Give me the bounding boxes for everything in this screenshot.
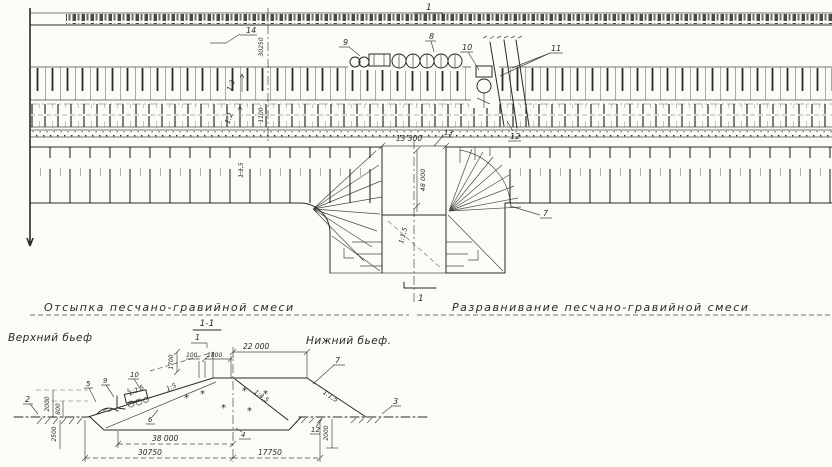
star-icon: * (200, 389, 205, 400)
dim-body-width: 48 000 (419, 169, 427, 192)
ground-hatch-right (301, 418, 380, 423)
stake-top-marks (483, 36, 522, 39)
callout-7-section: 7 (335, 356, 341, 365)
star-icon: * (184, 393, 189, 404)
star-icon: * (263, 389, 268, 400)
callout-3-leader (382, 406, 401, 414)
dim-core-width: 38 000 (152, 434, 178, 443)
zone-right-label: Разравнивание песчано-гравийной смеси (452, 301, 749, 314)
band-b-hatch (30, 104, 832, 127)
roller-icon (392, 52, 462, 71)
callout-14-leader (210, 34, 257, 43)
right-height-dim: 2000 (323, 419, 338, 448)
layer-band-b (30, 104, 832, 127)
ground-lines (14, 417, 428, 424)
callout-7-plan: 7 (543, 209, 549, 218)
star-icon: * (221, 403, 226, 414)
dim-berm-width: 22 000 (243, 342, 269, 351)
fill-zone-left (30, 147, 382, 273)
callout-8: 8 (429, 32, 434, 41)
fill-right-tongue-hatch (446, 215, 503, 271)
layer-band-a (30, 67, 832, 100)
dim-pit-depth: 2500 (51, 426, 58, 441)
fill-zone-right (446, 147, 832, 273)
dim-upstream-width: 30750 (138, 448, 162, 457)
callout-10: 10 (462, 43, 472, 52)
callout-9-section-leader (101, 385, 114, 397)
design-profile-dash (150, 352, 214, 371)
technical-drawing: 30250 1100 1:3 1:2 1:1,5 (0, 0, 832, 467)
left-height-dims: 2000 800 2500 (36, 390, 88, 449)
dim-left-axis: 30250 (258, 37, 265, 56)
callout-12-section: 12 (311, 426, 320, 434)
star-icon: * (247, 406, 252, 417)
callout-9-section: 9 (103, 377, 108, 385)
gravel-hatch (30, 130, 832, 137)
dim-crest-layer: 1800 (207, 352, 222, 359)
band-a-hatch (30, 67, 832, 100)
dim-h-left-lower: 800 (55, 403, 62, 415)
section-marker-bottom: 1 (404, 282, 436, 304)
ground-hatch-left (37, 418, 82, 424)
embankment-outline (88, 347, 366, 462)
callout-13: 13 (444, 129, 453, 137)
callout-2: 2 (25, 395, 30, 404)
gravel-strip (30, 130, 832, 137)
section-marker-bottom-label: 1 (418, 294, 424, 304)
dim-h-right: 2000 (323, 425, 330, 440)
callout-13-leader (434, 137, 453, 146)
slope-upstream-flat: 1:5 (165, 381, 178, 393)
callout-8-leader (425, 41, 436, 52)
callout-14: 14 (246, 26, 256, 35)
star-icon: * (242, 386, 247, 397)
zone-left-label: Отсыпка песчано-гравийной смеси (44, 301, 295, 314)
callout-7-section-leader (313, 365, 345, 384)
callout-2-leader (23, 404, 38, 414)
dim-crest-rise: 1700 (168, 354, 175, 369)
callout-11: 11 (551, 44, 561, 53)
plan-view: 30250 1100 1:3 1:2 1:1,5 (27, 3, 832, 315)
dam-construction-scheme: 30250 1100 1:3 1:2 1:1,5 (0, 0, 832, 467)
cross-section: 1-1 1 Верхний бьеф Нижний бьеф. 1:2,5 1:… (8, 319, 428, 462)
section-marker-top-label: 1 (426, 3, 432, 13)
callout-9: 9 (343, 38, 348, 47)
section-title: 1-1 (200, 319, 215, 329)
callout-10-section: 10 (130, 371, 139, 379)
dim-crest-offset: 100 (186, 352, 198, 359)
slope-downstream: 1:1,5 (321, 388, 339, 404)
upstream-label: Верхний бьеф (8, 332, 93, 344)
callout-5: 5 (86, 380, 91, 388)
section-flag-label: 1 (195, 333, 200, 342)
section-callouts: 2 3 4 5 9 10 6 7 12 (23, 356, 401, 439)
fill-right-hatch (505, 147, 832, 203)
section-flag (191, 343, 207, 348)
dim-gap-width: 13 300 (396, 134, 422, 143)
excavator-icon (471, 60, 499, 108)
callout-3: 3 (393, 397, 398, 406)
crest-dims: 100 1800 22 000 1700 (168, 342, 310, 378)
truck-icon (348, 50, 394, 70)
road-strip (30, 13, 832, 25)
dim-h-left-upper: 2000 (44, 396, 51, 411)
bottom-dims: 38 000 30750 17750 (82, 420, 323, 462)
dim-downstream-width: 17750 (258, 448, 282, 457)
slope-gap-label: 1:1,5 (397, 226, 409, 244)
fill-left-hatch (32, 147, 380, 203)
downstream-label: Нижний бьеф. (306, 335, 391, 347)
callout-12: 12 (510, 132, 520, 141)
road-strip-hatch (66, 14, 832, 24)
